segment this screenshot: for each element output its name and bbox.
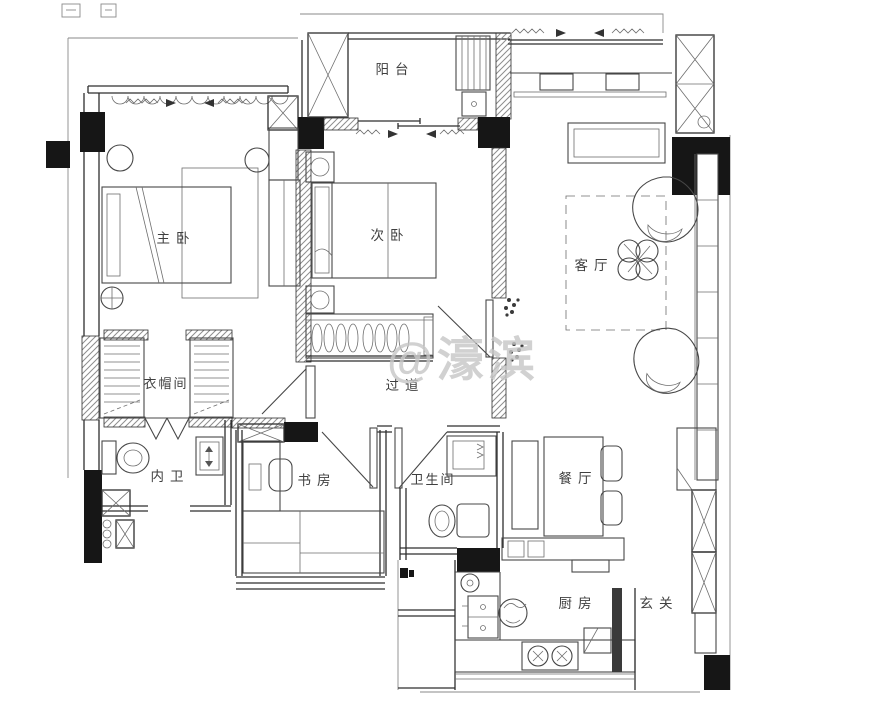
room-master-bathroom: 内卫 [84, 420, 231, 563]
wall-column [80, 112, 105, 152]
drying-rack-icon [456, 36, 490, 90]
console-table-icon [568, 123, 665, 163]
wall-column [46, 141, 70, 168]
shaft-column [676, 35, 714, 133]
curtain-icon [112, 96, 288, 104]
watermark: @濠滨 [387, 333, 539, 386]
room-label-balcony: 阳台 [376, 62, 415, 77]
room-bathroom: 卫生间 [395, 426, 503, 572]
dimension-mark [101, 4, 116, 17]
desk-icon [243, 441, 280, 511]
room-label-master-bedroom: 主卧 [157, 231, 196, 246]
floor-plan-drawing: 主卧 衣帽间 [0, 0, 894, 707]
cabinet-icon [102, 490, 134, 548]
bench-icon [512, 441, 538, 529]
room-kitchen: 厨房 [398, 560, 635, 690]
counter [455, 572, 500, 640]
vanity-sink-icon [447, 436, 496, 476]
counter [455, 640, 635, 672]
hatched-wall [458, 118, 478, 130]
window-seat-icon [606, 74, 639, 90]
dining-table-icon [544, 437, 603, 536]
hatched-wall [492, 148, 506, 298]
beanbag-chair-icon [633, 177, 698, 242]
floor-plan-page: 主卧 衣帽间 [0, 0, 894, 707]
wall-column [284, 422, 318, 442]
room-label-kitchen: 厨房 [559, 596, 598, 611]
room-label-cloakroom: 衣帽间 [143, 376, 188, 391]
door-swing-icon [262, 366, 315, 418]
wall-column [298, 117, 324, 149]
room-balcony: 阳台 [308, 33, 511, 148]
hatched-wall [324, 118, 358, 130]
folding-door-icon [145, 418, 189, 439]
room-living-room: 客厅 [504, 29, 730, 480]
sliding-door-icon [358, 118, 460, 129]
hatched-wall [496, 33, 511, 119]
curtain-arrow-icon [512, 29, 644, 37]
window-wall [398, 610, 455, 688]
window-wall [508, 40, 663, 44]
stove-icon [522, 642, 578, 670]
wall-stub [612, 588, 622, 672]
valve-icon [409, 570, 414, 577]
chair-icon [601, 491, 622, 525]
toilet-icon [102, 441, 149, 474]
curtain-arrow-icon [356, 130, 464, 138]
wall-column [84, 470, 102, 563]
room-master-bedroom: 主卧 [46, 40, 324, 362]
cabinet-icon [269, 128, 300, 286]
chair-icon [601, 446, 622, 481]
tatami-cabinet-icon [243, 511, 384, 573]
cabinet-notch [697, 154, 718, 195]
plant-icon [101, 287, 123, 309]
wall-column [704, 655, 730, 690]
room-label-entry: 玄关 [640, 595, 679, 611]
window-wall [455, 674, 635, 679]
tv-cabinet-icon [695, 154, 718, 480]
plant-icon [499, 599, 527, 627]
sink-icon [461, 574, 498, 638]
sink-icon [196, 437, 223, 475]
side-table-icon [618, 240, 658, 280]
wall [377, 426, 392, 432]
wardrobe-icon [100, 338, 144, 418]
wall [236, 430, 386, 576]
room-label-bathroom: 卫生间 [410, 472, 455, 487]
room-label-dining-room: 餐厅 [559, 471, 598, 486]
wall [400, 426, 503, 560]
room-label-study: 书房 [298, 473, 337, 488]
room-label-living-room: 客厅 [575, 257, 614, 273]
room-label-second-bedroom: 次卧 [371, 228, 410, 243]
nightstand-icon [107, 145, 133, 171]
valve-icon [400, 568, 408, 578]
room-label-master-bathroom: 内卫 [151, 469, 190, 484]
window-wall [236, 577, 385, 589]
wall-column [478, 117, 510, 148]
shaft-column [308, 33, 348, 117]
washer-icon [462, 92, 486, 116]
shelf-icon [514, 92, 666, 97]
shaft-column [268, 96, 298, 130]
hatched-wall [82, 336, 99, 420]
toilet-icon [429, 504, 489, 537]
sideboard-icon [502, 538, 624, 572]
window-wall [88, 40, 302, 117]
room-study: 书房 [236, 424, 392, 589]
window-seat-icon [540, 74, 573, 90]
room-entry: 玄关 [640, 428, 731, 690]
wall-column [457, 548, 500, 572]
plant-icon [504, 298, 520, 317]
dimension-mark [62, 4, 80, 17]
beanbag-chair-icon [629, 324, 703, 397]
room-cloakroom: 衣帽间 [82, 330, 233, 439]
room-dining-room: 餐厅 [502, 437, 624, 572]
wardrobe-icon [190, 338, 233, 418]
